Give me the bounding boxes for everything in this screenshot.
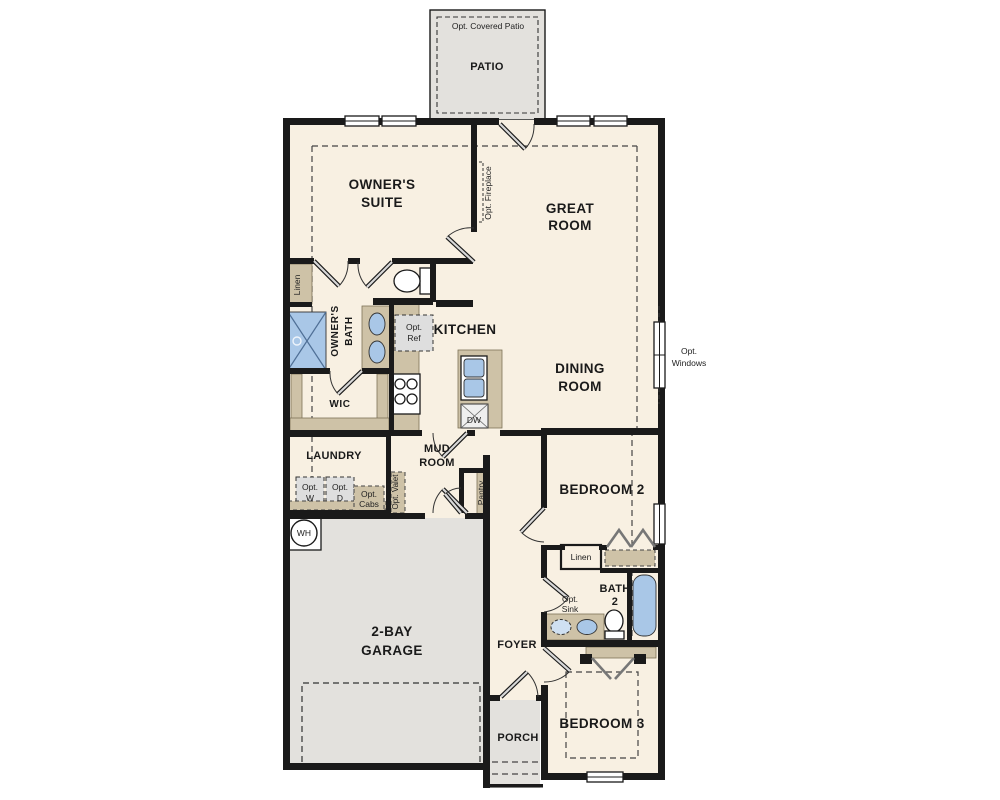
porch-slab — [490, 700, 540, 788]
opt-valet-label: Opt. Valet — [391, 474, 400, 510]
bathtub — [633, 575, 656, 636]
water-heater-label: WH — [297, 528, 311, 538]
bath2-sink — [577, 620, 597, 635]
svg-text:Ref: Ref — [407, 333, 421, 343]
laundry-label: LAUNDRY — [306, 450, 362, 462]
window — [654, 504, 665, 544]
opt-sink-fixture — [551, 620, 571, 635]
linen-label: Linen — [292, 274, 302, 295]
floor-plan-drawing: Opt. Covered Patio PATIO OWNER'S SUITE G… — [0, 0, 1000, 800]
opt-windows-label: Opt. — [681, 346, 697, 356]
svg-text:W: W — [306, 493, 314, 503]
mud-room-label: MUD — [424, 443, 450, 455]
patio-label: PATIO — [470, 61, 504, 73]
svg-text:D: D — [337, 493, 343, 503]
opt-dryer-label: Opt. — [332, 482, 348, 492]
porch-label: PORCH — [497, 732, 538, 744]
toilet-bowl — [605, 610, 623, 632]
opt-covered-patio-label: Opt. Covered Patio — [452, 21, 525, 31]
opt-sink-label: Opt. — [562, 594, 578, 604]
garage-slab — [286, 518, 483, 765]
bedroom-3-label: BEDROOM 3 — [559, 716, 644, 731]
svg-text:GARAGE: GARAGE — [361, 643, 423, 658]
svg-text:ROOM: ROOM — [419, 457, 454, 469]
dining-room-label: DINING — [555, 361, 605, 376]
dishwasher-label: DW — [467, 415, 481, 425]
svg-text:BATH: BATH — [344, 316, 355, 345]
svg-text:Windows: Windows — [672, 358, 706, 368]
svg-text:Cabs: Cabs — [359, 499, 379, 509]
toilet-bowl — [394, 270, 420, 292]
wic-label: WIC — [329, 399, 350, 410]
bath-2-label: BATH — [600, 583, 631, 595]
opt-cabs-label: Opt. — [361, 489, 377, 499]
great-room-label: GREAT — [546, 201, 595, 216]
svg-text:ROOM: ROOM — [548, 218, 592, 233]
opt-ref-label: Opt. — [406, 322, 422, 332]
bath-sink — [369, 341, 385, 363]
bedroom-2-label: BEDROOM 2 — [559, 482, 644, 497]
window — [345, 116, 379, 126]
kitchen-label: KITCHEN — [434, 322, 497, 337]
hall-linen-label: Linen — [571, 552, 592, 562]
toilet-tank — [605, 631, 624, 639]
opt-fireplace-label: Opt. Fireplace — [483, 166, 493, 220]
owners-suite-label: OWNER'S — [349, 177, 416, 192]
window — [594, 116, 627, 126]
pantry-label: Pantry — [476, 480, 486, 505]
floor-plan-page: Opt. Covered Patio PATIO OWNER'S SUITE G… — [0, 0, 1000, 800]
foyer-label: FOYER — [497, 639, 536, 651]
owners-bath-label: OWNER'S — [330, 305, 341, 357]
opt-washer-label: Opt. — [302, 482, 318, 492]
svg-text:Sink: Sink — [562, 604, 579, 614]
svg-text:SUITE: SUITE — [361, 195, 403, 210]
svg-text:2: 2 — [612, 596, 618, 608]
bath-sink — [369, 313, 385, 335]
window — [587, 772, 623, 782]
island-sink — [464, 359, 484, 377]
window — [382, 116, 416, 126]
svg-text:ROOM: ROOM — [558, 379, 602, 394]
window — [557, 116, 590, 126]
garage-label: 2-BAY — [371, 624, 412, 639]
